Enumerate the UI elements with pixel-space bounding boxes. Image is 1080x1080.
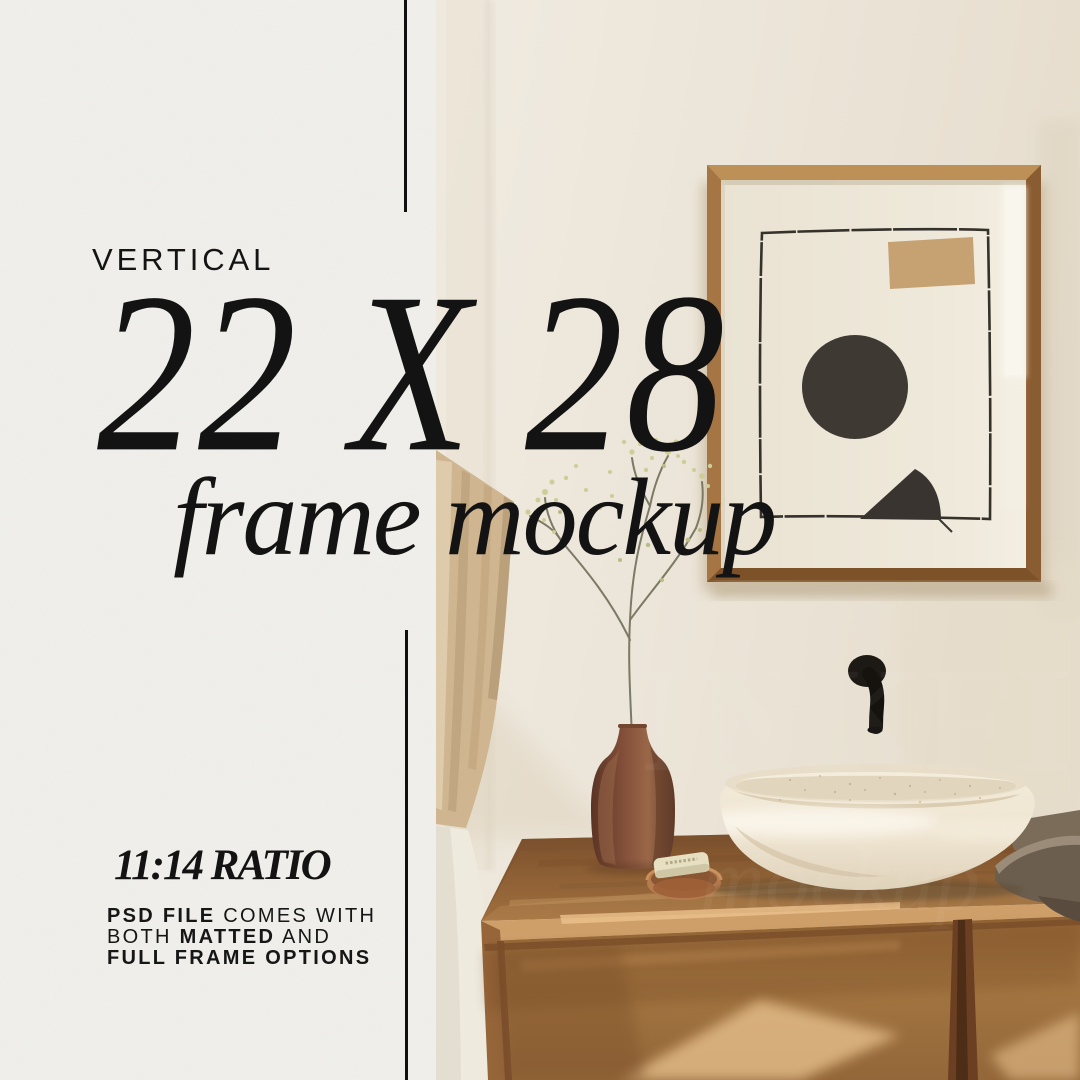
svg-text:INKFI: INKFI <box>640 637 1073 803</box>
svg-text:mockup: mockup <box>700 831 980 930</box>
